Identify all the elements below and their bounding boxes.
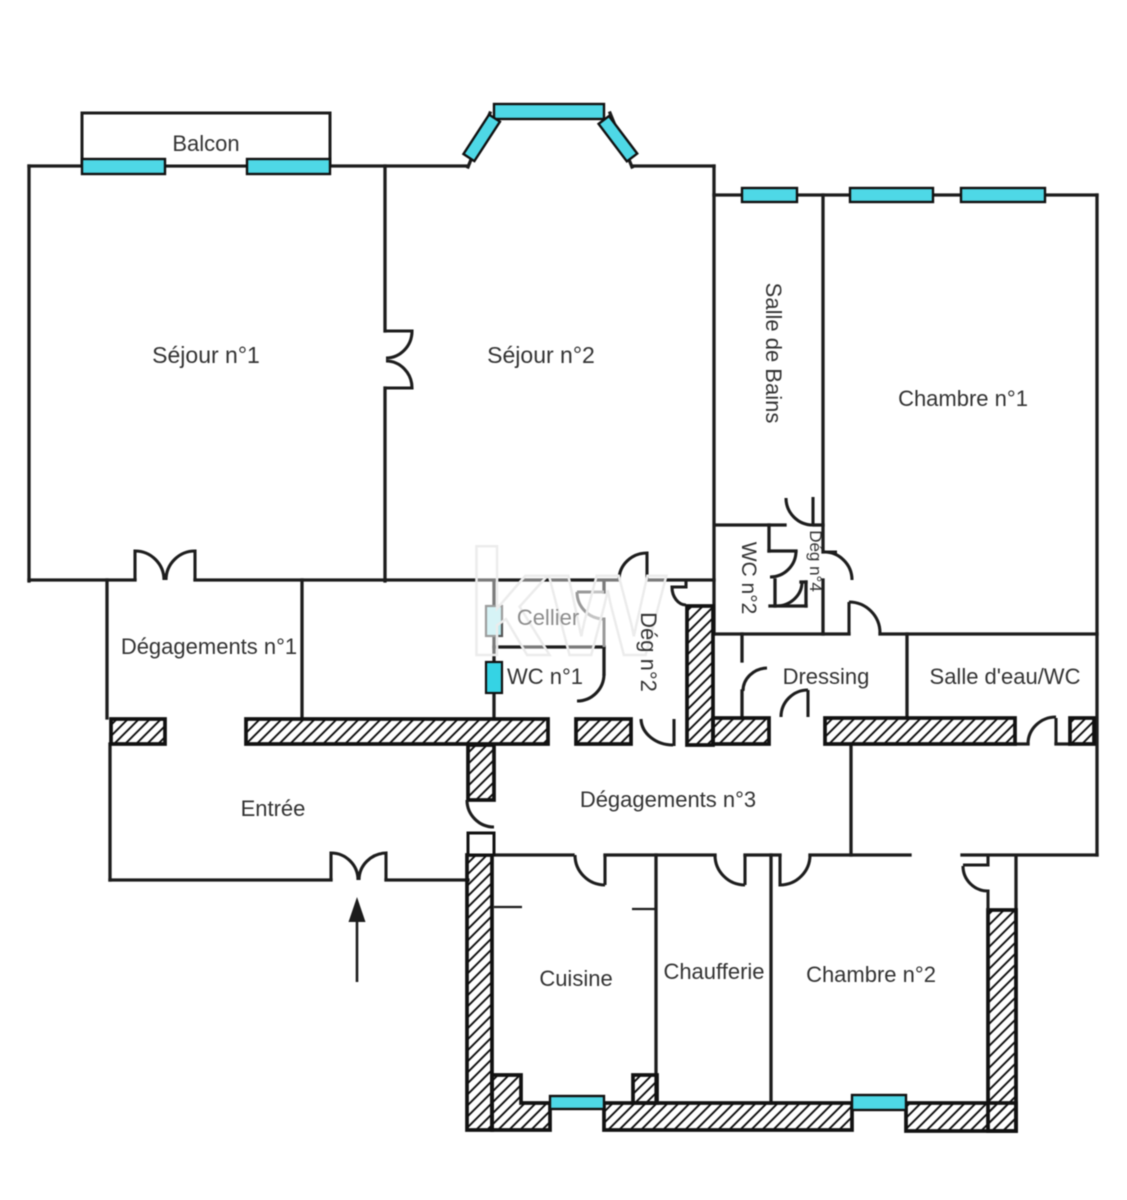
svg-text:Balcon: Balcon bbox=[172, 131, 239, 156]
svg-text:Dég n°2: Dég n°2 bbox=[636, 612, 661, 692]
svg-text:Salle d'eau/WC: Salle d'eau/WC bbox=[930, 664, 1081, 689]
svg-text:Dégagements n°1: Dégagements n°1 bbox=[121, 634, 297, 659]
svg-text:Salle de Bains: Salle de Bains bbox=[761, 283, 786, 424]
svg-text:Chambre n°2: Chambre n°2 bbox=[806, 962, 936, 987]
svg-text:Entrée: Entrée bbox=[241, 796, 306, 821]
svg-text:WC n°2: WC n°2 bbox=[737, 542, 760, 615]
svg-text:Chaufferie: Chaufferie bbox=[663, 959, 764, 984]
svg-text:Dégagements n°3: Dégagements n°3 bbox=[580, 787, 756, 812]
svg-text:WC n°1: WC n°1 bbox=[507, 664, 583, 689]
svg-text:Séjour n°2: Séjour n°2 bbox=[487, 342, 595, 368]
svg-text:Dég n°4: Dég n°4 bbox=[806, 530, 825, 592]
svg-text:Cuisine: Cuisine bbox=[539, 966, 612, 991]
svg-text:Chambre n°1: Chambre n°1 bbox=[898, 386, 1028, 411]
svg-text:Cellier: Cellier bbox=[517, 605, 579, 630]
svg-text:Séjour n°1: Séjour n°1 bbox=[152, 342, 260, 368]
svg-text:Dressing: Dressing bbox=[783, 664, 870, 689]
